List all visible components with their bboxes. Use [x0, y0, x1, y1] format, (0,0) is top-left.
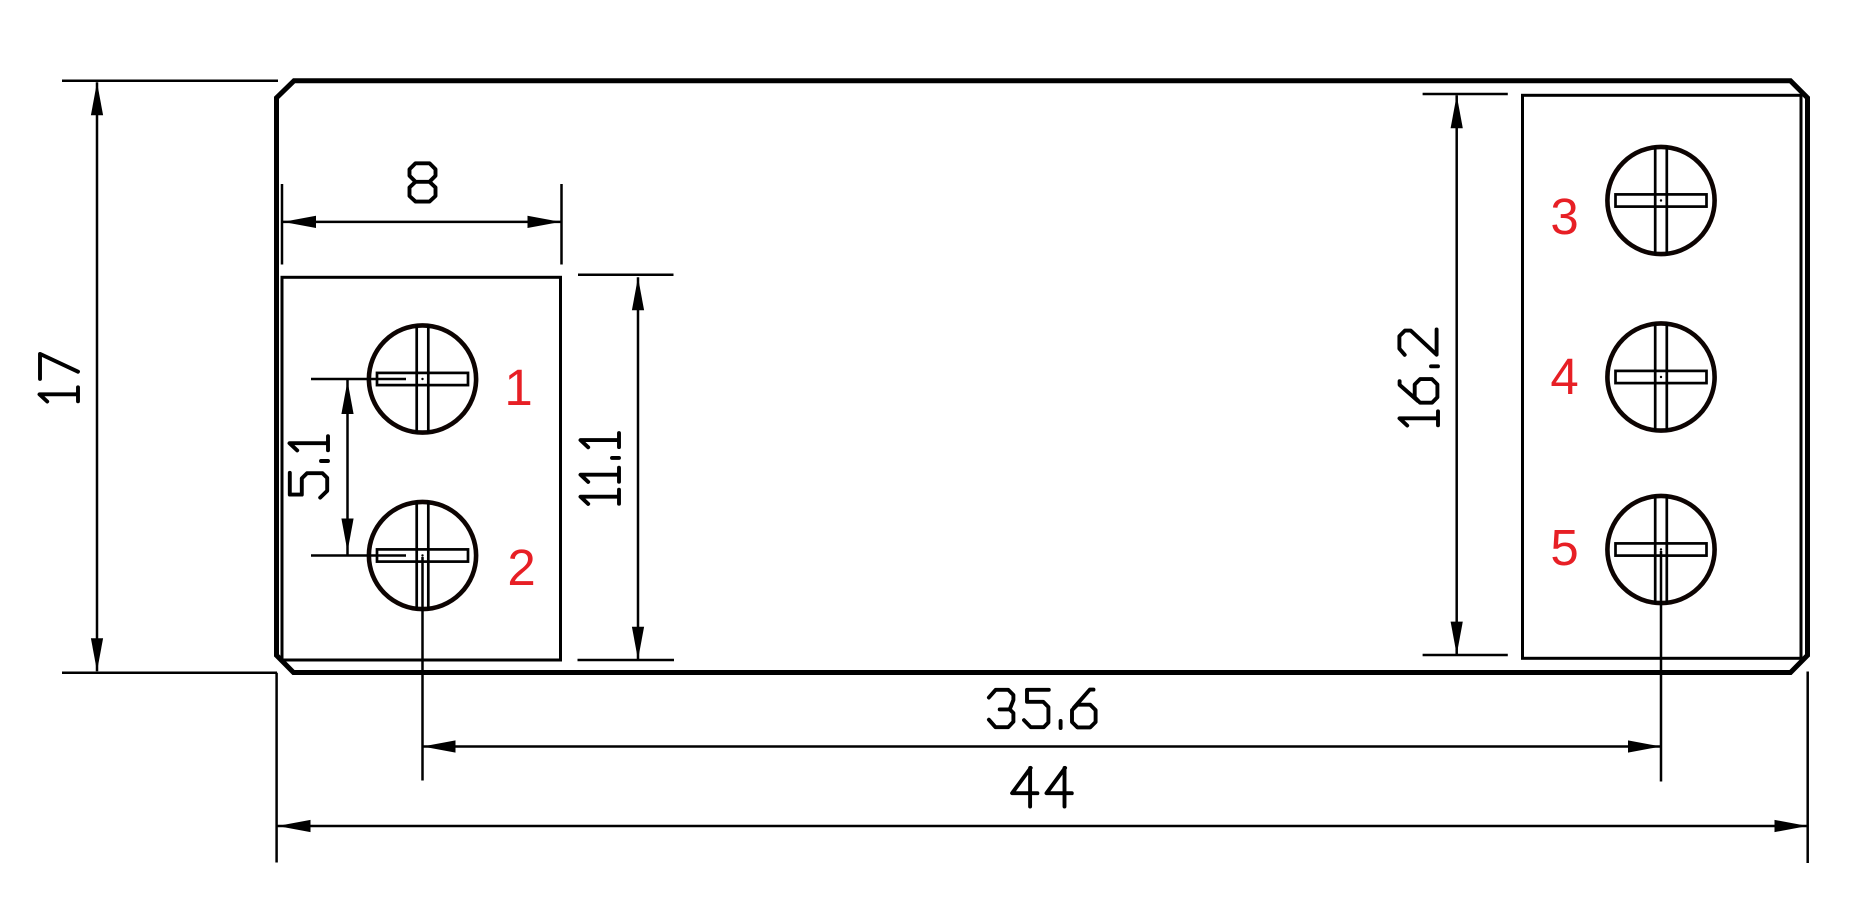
svg-text:1: 1: [504, 359, 532, 416]
svg-text:4: 4: [1550, 348, 1578, 405]
svg-text:5: 5: [1550, 519, 1578, 576]
svg-text:2: 2: [507, 539, 535, 596]
svg-text:3: 3: [1550, 188, 1578, 245]
